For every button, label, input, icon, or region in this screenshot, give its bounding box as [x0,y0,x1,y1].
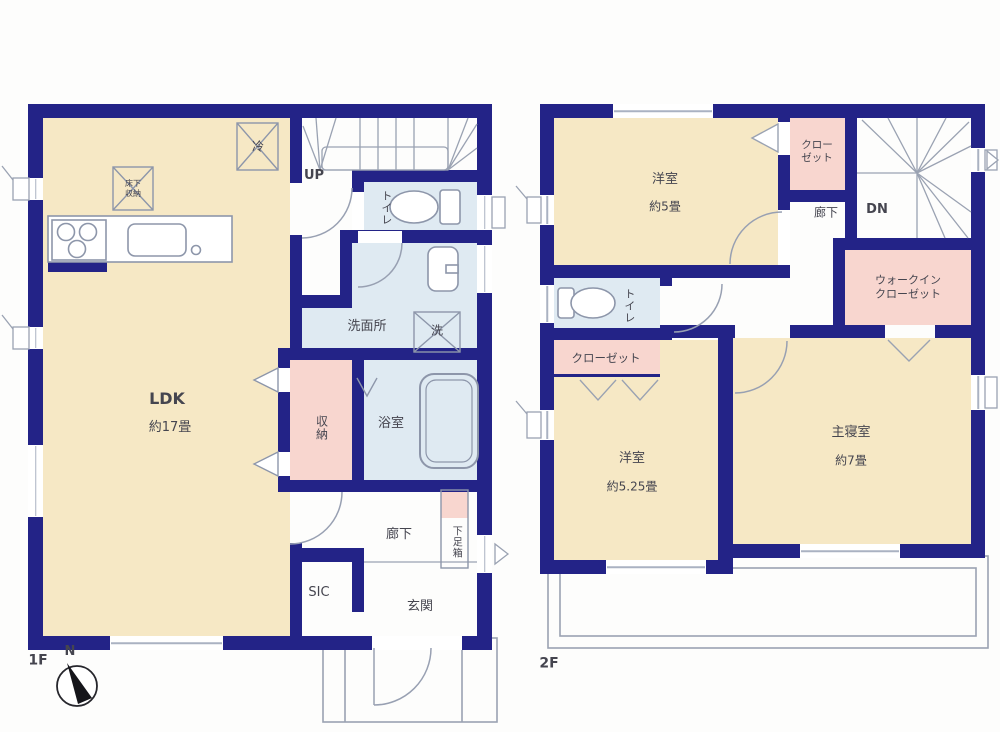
western-5-area-label: 約5畳 [649,200,681,215]
stairs-up-label: UP [304,168,324,184]
western-525-area-label: 約5.25畳 [607,480,658,495]
room-washroom [352,243,478,356]
window [971,375,985,410]
room-ldk [42,118,290,636]
sic-label: SIC [308,585,329,601]
window [971,148,985,172]
stairs-dn-label: DN [866,202,888,218]
window [540,410,554,440]
stair-window-marker [987,151,998,169]
porch-outline [323,638,497,722]
hallway-2f-label: 廊下 [814,206,838,221]
compass [57,663,97,706]
washing-machine-label: 洗 [431,324,443,339]
kitchen-half-wall [48,262,107,272]
storage-1f-label: 収納 [314,415,329,441]
wall [833,238,985,250]
hallway-1f-label: 廊下 [386,527,412,543]
wall [28,104,492,118]
window [28,178,43,200]
master-bedroom-label: 主寝室 [831,425,870,441]
ldk-area-label: 約17畳 [149,420,192,436]
entrance-side-opening [477,535,492,573]
wall [660,265,672,286]
room-toilet-2f [554,278,660,328]
western-5-door-gap [778,210,790,265]
window [606,560,706,574]
wall [290,548,364,562]
entrance-side-marker [495,544,508,564]
storage-opening [278,368,290,392]
storage-opening [278,452,290,476]
room-western-5 [554,118,778,265]
entrance-label: 玄関 [407,599,433,615]
floor2-label: 2F [539,655,558,673]
wall [790,325,885,338]
washroom-door-gap [358,231,402,243]
window [540,285,554,323]
window [110,636,223,650]
wall [290,118,302,183]
wall [718,325,733,574]
ldk-label: LDK [149,389,185,409]
toilet-2f-label: トイレ [622,288,636,324]
shoe-cabinet-label: 下足箱 [449,526,462,559]
closet-opening [778,122,790,155]
toilet-1f-label: トイレ [379,190,393,226]
stairs-1f [303,118,477,170]
wall [935,325,985,338]
western-5-label: 洋室 [652,172,678,188]
window [28,327,43,349]
wall [845,118,857,238]
wall [352,360,364,480]
entrance-door-arc [374,648,431,705]
closet-lower-label: クローゼット [572,351,641,365]
shoe-cabinet-box [441,490,468,518]
bath-label: 浴室 [378,416,404,432]
wall [290,295,352,308]
refrigerator-label: 冷 [252,140,264,155]
floor1-label: 1F [28,652,47,670]
master-bedroom-area-label: 約7畳 [835,454,867,469]
wall [352,170,492,182]
window [28,445,43,517]
wall [778,155,790,210]
closet-upper-label: クローゼット [797,139,837,165]
washroom-label: 洗面所 [347,319,386,335]
hallway-door-arc [290,492,342,544]
toilet-door-gap [352,192,364,230]
wall [290,562,302,636]
stairs-2f [857,118,971,238]
wall [278,348,478,360]
compass-north-label: N [65,644,76,660]
window [477,195,492,230]
wall [540,104,985,118]
wall [660,326,672,340]
window [540,195,554,225]
wall [352,562,364,612]
western-525-label: 洋室 [619,451,645,467]
window [613,104,713,118]
window [477,245,492,293]
balcony-inner-line [560,568,976,636]
wall [278,480,478,492]
floor-plan: LDK 約17畳 UP トイレ 洗面所 洗 収納 浴室 廊下 下足箱 SIC 玄… [0,0,1000,732]
walk-in-closet-label: ウォークインクローゼット [872,273,944,301]
compass-needle [67,663,92,704]
wall [778,104,790,122]
window [800,544,900,558]
underfloor-storage-label: 床下収納 [123,179,143,199]
entrance-door-gap [372,636,462,650]
wall [340,243,352,295]
wall [540,328,672,340]
